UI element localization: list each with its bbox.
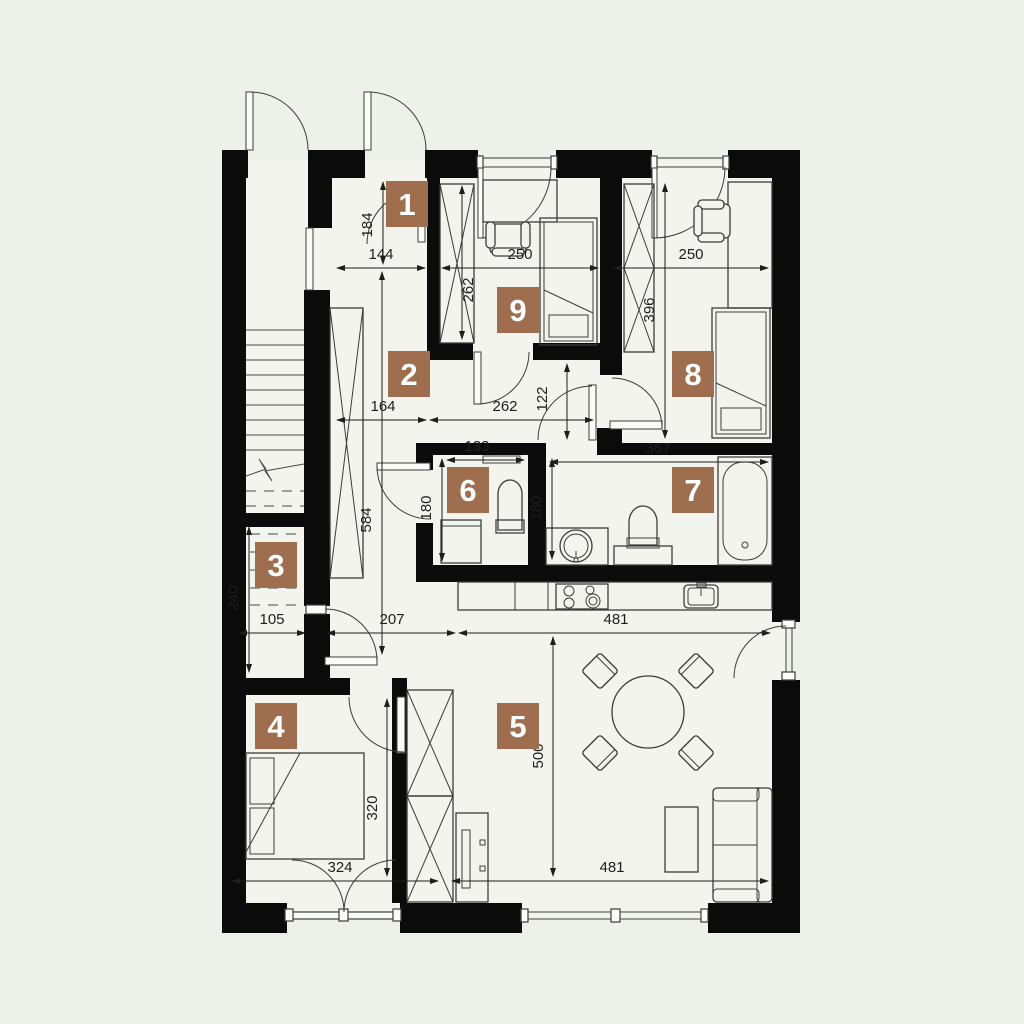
room-number: 9	[509, 293, 526, 328]
room-label-3: 3	[255, 542, 297, 588]
dimension-value: 105	[259, 611, 284, 628]
dimension-value: 396	[641, 297, 658, 322]
dimension-value: 584	[358, 507, 375, 532]
dimension-value: 481	[603, 611, 628, 628]
room-label-7: 7	[672, 467, 714, 513]
room-label-9: 9	[497, 287, 539, 333]
room-number: 7	[684, 473, 701, 508]
room-number: 3	[267, 548, 284, 583]
dimension-value: 180	[528, 495, 545, 520]
floor-plan-page: 1841442502502623961642621225841333671801…	[0, 0, 1024, 1024]
room-label-4: 4	[255, 703, 297, 749]
room-label-8: 8	[672, 351, 714, 397]
entry-door-1-icon	[246, 92, 308, 150]
room-number: 5	[509, 709, 526, 744]
room-label-6: 6	[447, 467, 489, 513]
room-label-5: 5	[497, 703, 539, 749]
room-label-1: 1	[386, 181, 428, 227]
room-number: 1	[398, 187, 415, 222]
entry-door-2-icon	[364, 92, 426, 150]
dimension-value: 184	[359, 212, 376, 237]
dimension-value: 262	[460, 277, 477, 302]
room-number: 2	[400, 357, 417, 392]
dimension-value: 180	[418, 495, 435, 520]
dimension-value: 122	[534, 386, 551, 411]
dimension-value: 164	[370, 398, 395, 415]
room-label-2: 2	[388, 351, 430, 397]
dimension-value: 250	[507, 246, 532, 263]
dimension-value: 367	[645, 440, 670, 457]
dimension-value: 262	[492, 398, 517, 415]
dimension-value: 240	[225, 585, 242, 610]
dimension-value: 133	[464, 438, 489, 455]
door-stair-lobby-icon	[306, 228, 313, 290]
dimension-value: 481	[599, 859, 624, 876]
room-number: 6	[459, 473, 476, 508]
floor-plan-canvas: 1841442502502623961642621225841333671801…	[0, 0, 1024, 1024]
room-number: 8	[684, 357, 701, 392]
dimension-value: 207	[379, 611, 404, 628]
dimension-value: 320	[364, 795, 381, 820]
room-number: 4	[267, 709, 285, 744]
dimension-value: 250	[678, 246, 703, 263]
dimension-value: 324	[327, 859, 352, 876]
dimension-value: 144	[368, 246, 393, 263]
desk-chair-room8-icon	[694, 200, 730, 242]
